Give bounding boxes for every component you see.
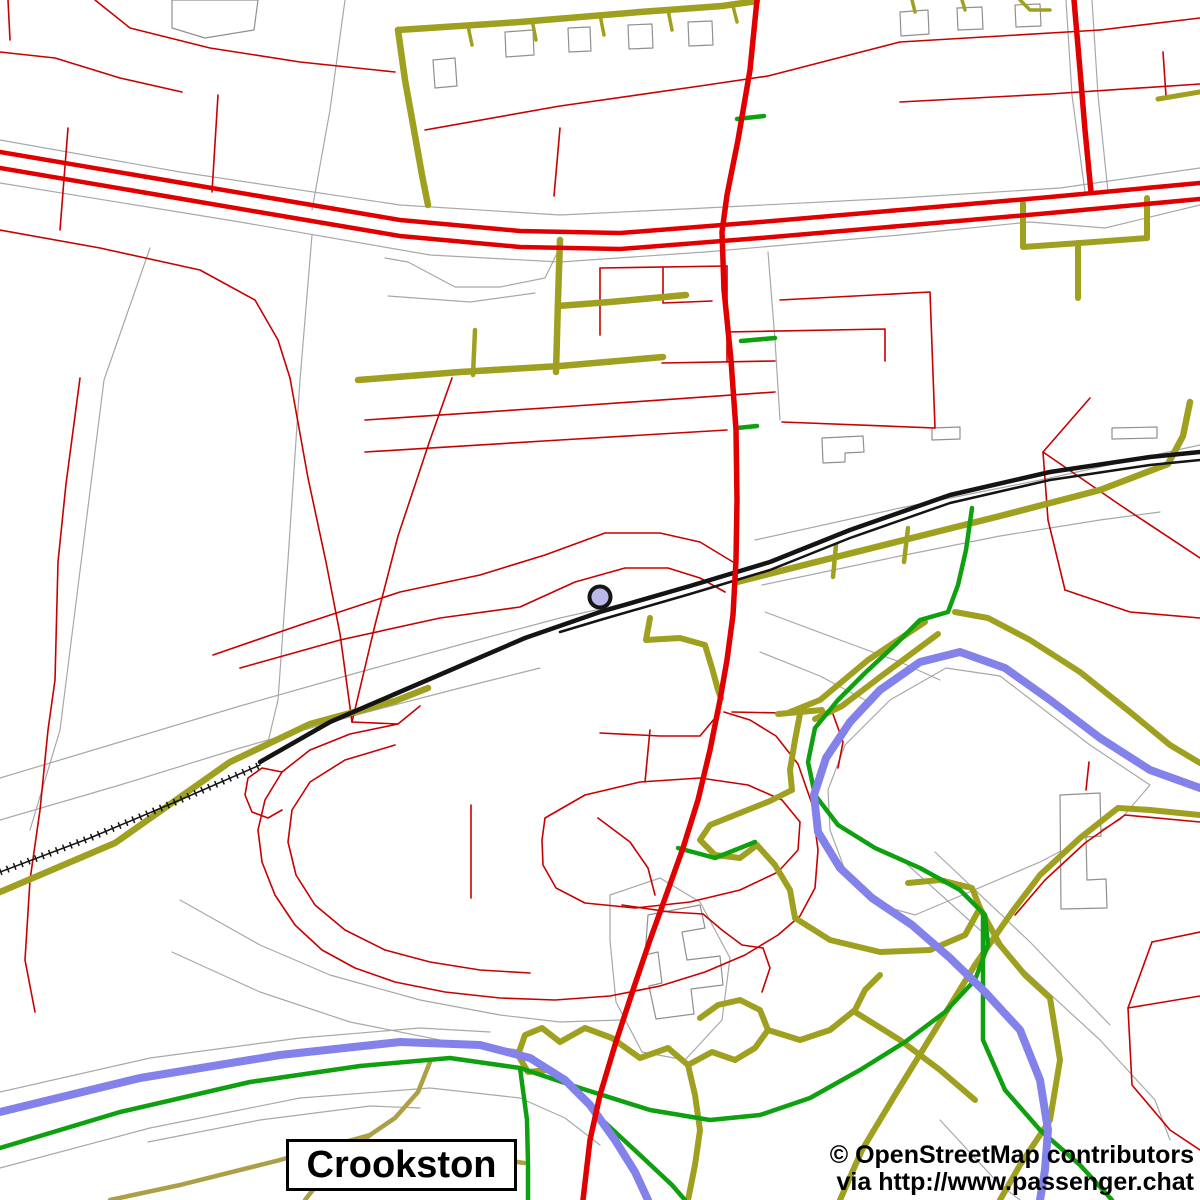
road-minor-br-1 xyxy=(1152,932,1200,942)
path-green-stub-1 xyxy=(741,338,775,341)
road-minor-tr-vert xyxy=(1163,52,1166,96)
road-minor-houses-line-2 xyxy=(768,30,1100,76)
street-river-parallel-ne xyxy=(955,612,1200,763)
building-house-7 xyxy=(957,7,983,30)
road-minor-box-6 xyxy=(727,329,885,361)
boundary-crescent-south-1 xyxy=(180,900,620,1022)
building-house-4 xyxy=(628,24,653,49)
road-minor-cross-dual-3 xyxy=(554,128,560,196)
street-station-hook xyxy=(646,618,721,698)
boundary-left-1 xyxy=(312,0,345,210)
road-minor-tr-horiz xyxy=(900,84,1200,102)
road-minor-field-r1 xyxy=(1043,398,1090,452)
building-top-left xyxy=(172,0,258,38)
building-house-6 xyxy=(900,10,929,36)
street-mid-horiz-long xyxy=(358,357,663,380)
building-rail-3 xyxy=(822,436,864,463)
street-squiggle-south xyxy=(688,1065,700,1200)
railway-station-marker[interactable] xyxy=(590,587,611,608)
place-label: Crookston xyxy=(286,1139,517,1191)
road-minor-long-2 xyxy=(365,430,727,452)
road-minor-br-3 xyxy=(1128,942,1200,1150)
street-stub-vertical xyxy=(833,545,836,577)
street-loop-east xyxy=(795,880,980,952)
road-minor-junction-west xyxy=(600,712,720,736)
boundary-left-3 xyxy=(30,248,150,830)
building-house-1 xyxy=(433,58,457,88)
boundary-left-2 xyxy=(268,235,312,742)
road-minor-junction-east xyxy=(732,712,782,713)
road-minor-long-1 xyxy=(365,392,775,420)
road-minor-br-2 xyxy=(1128,996,1200,1008)
street-squiggle-se xyxy=(855,1012,975,1100)
attribution-line-2: via http://www.passenger.chat xyxy=(830,1169,1194,1196)
boundary-midblock xyxy=(385,243,562,287)
boundary-bottom-left-curve xyxy=(148,1106,420,1142)
street-tr-stub-1 xyxy=(912,0,915,12)
path-green-branch-south xyxy=(520,1068,528,1200)
map-attribution: © OpenStreetMap contributors via http://… xyxy=(830,1142,1194,1196)
street-top-left-vertical xyxy=(398,30,428,205)
building-house-3 xyxy=(568,27,591,52)
track-bottom-left-main xyxy=(370,1062,430,1135)
path-green-stub-3 xyxy=(737,426,757,428)
street-drive-5 xyxy=(733,6,737,22)
road-minor-field-r4 xyxy=(1065,590,1200,618)
map-render-layer xyxy=(0,0,1200,1200)
street-drive-1 xyxy=(468,26,472,45)
street-rail-cross-stub xyxy=(904,528,908,562)
road-minor-left-long xyxy=(25,378,80,1012)
street-squiggle-east xyxy=(768,975,880,1040)
road-minor-left-diag-1 xyxy=(0,230,290,378)
river-east-loop xyxy=(814,652,1200,1200)
boundary-crescent-south-2 xyxy=(172,952,520,1050)
road-minor-tr-corner xyxy=(1100,18,1200,30)
street-mid-stub xyxy=(473,330,475,375)
boundary-rail-nw-1 xyxy=(0,600,640,778)
attribution-line-1: © OpenStreetMap contributors xyxy=(830,1142,1194,1169)
road-minor-crescent-middle xyxy=(288,745,530,973)
road-minor-connector-w xyxy=(352,722,398,724)
road-minor-houses-line xyxy=(425,76,768,130)
road-minor-stub-building xyxy=(1086,762,1089,790)
road-major-topright-vertical xyxy=(1074,0,1091,192)
street-drive-4 xyxy=(668,10,672,30)
building-rail-1 xyxy=(932,427,960,440)
road-minor-crescent-outer xyxy=(258,706,818,1000)
road-minor-parallel xyxy=(598,818,655,895)
road-minor-left-diag-2 xyxy=(290,378,352,722)
road-minor-tl-curve-2 xyxy=(0,52,182,92)
street-hook-south xyxy=(700,714,800,918)
boundary-river-loop-parcel xyxy=(828,668,1150,915)
boundary-midblock-2 xyxy=(388,293,535,302)
street-rail-parallel-sw xyxy=(0,688,428,892)
road-minor-corner-tl xyxy=(8,0,10,40)
building-house-5 xyxy=(688,21,713,46)
road-minor-ne-rect xyxy=(780,292,935,428)
street-right-edge-stub xyxy=(1158,92,1200,99)
boundary-river-se-1 xyxy=(900,858,1170,1140)
road-minor-bc-3 xyxy=(762,948,770,992)
road-minor-crescent-spoke-1 xyxy=(645,730,650,782)
road-minor-box-5 xyxy=(662,361,775,363)
road-minor-bc-2 xyxy=(703,914,763,948)
building-rail-2 xyxy=(1112,427,1157,439)
building-house-2 xyxy=(505,30,534,57)
road-minor-se-pair xyxy=(1015,815,1200,915)
road-minor-crescent-bump xyxy=(245,768,282,818)
map-canvas[interactable]: Crookston © OpenStreetMap contributors v… xyxy=(0,0,1200,1200)
street-mid-horiz-upper xyxy=(558,295,686,306)
